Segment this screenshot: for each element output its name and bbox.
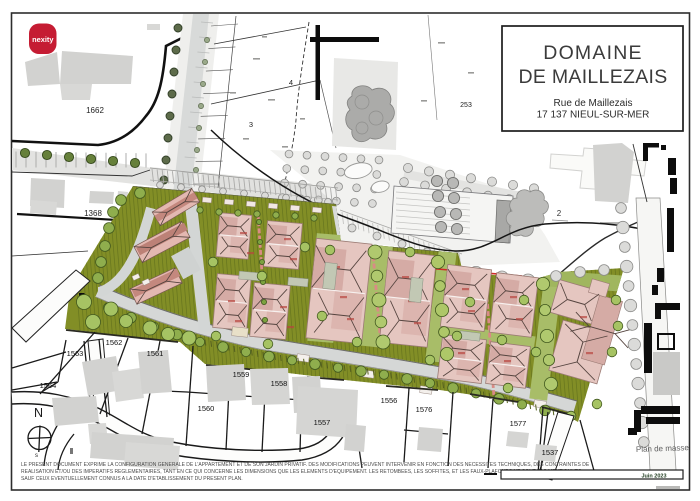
svg-text:1562: 1562 [106,338,123,347]
svg-text:1559: 1559 [233,370,250,379]
svg-text:Rue de Maillezais: Rue de Maillezais [554,98,633,109]
svg-text:N: N [34,406,43,420]
svg-text:1563: 1563 [67,349,84,358]
svg-text:4: 4 [289,78,293,87]
svg-text:1557: 1557 [314,418,331,427]
svg-text:253: 253 [460,102,472,109]
svg-text:Juin 2023: Juin 2023 [641,474,666,480]
svg-text:DOMAINE: DOMAINE [543,42,642,64]
svg-text:1576: 1576 [416,405,433,414]
svg-text:1564: 1564 [40,381,57,390]
svg-text:1537: 1537 [542,448,559,457]
svg-text:1558: 1558 [271,379,288,388]
svg-text:1561: 1561 [147,349,164,358]
svg-text:LE PRESENT DOCUMENT EXPRIME LA: LE PRESENT DOCUMENT EXPRIME LA CONFIGURA… [21,462,590,468]
svg-text:3: 3 [249,120,253,129]
svg-text:17 137 NIEUL-SUR-MER: 17 137 NIEUL-SUR-MER [537,110,650,121]
svg-text:1577: 1577 [510,419,527,428]
svg-text:DE MAILLEZAIS: DE MAILLEZAIS [518,66,667,88]
svg-text:REALISATION ET/OU DES IMPERATI: REALISATION ET/OU DES IMPERATIFS REGLEME… [21,469,582,475]
svg-text:1556: 1556 [381,396,398,405]
svg-text:nexity: nexity [32,35,54,44]
svg-text:s: s [35,453,38,459]
svg-text:2: 2 [557,209,562,218]
svg-text:1560: 1560 [198,404,215,413]
svg-text:SAUF CEUX EVENTUELLEMENT CONNU: SAUF CEUX EVENTUELLEMENT CONNUS A LA DAT… [21,476,243,482]
svg-text:Plan de masse: Plan de masse [636,443,690,454]
svg-text:1662: 1662 [86,106,104,115]
svg-text:1368: 1368 [84,209,102,218]
